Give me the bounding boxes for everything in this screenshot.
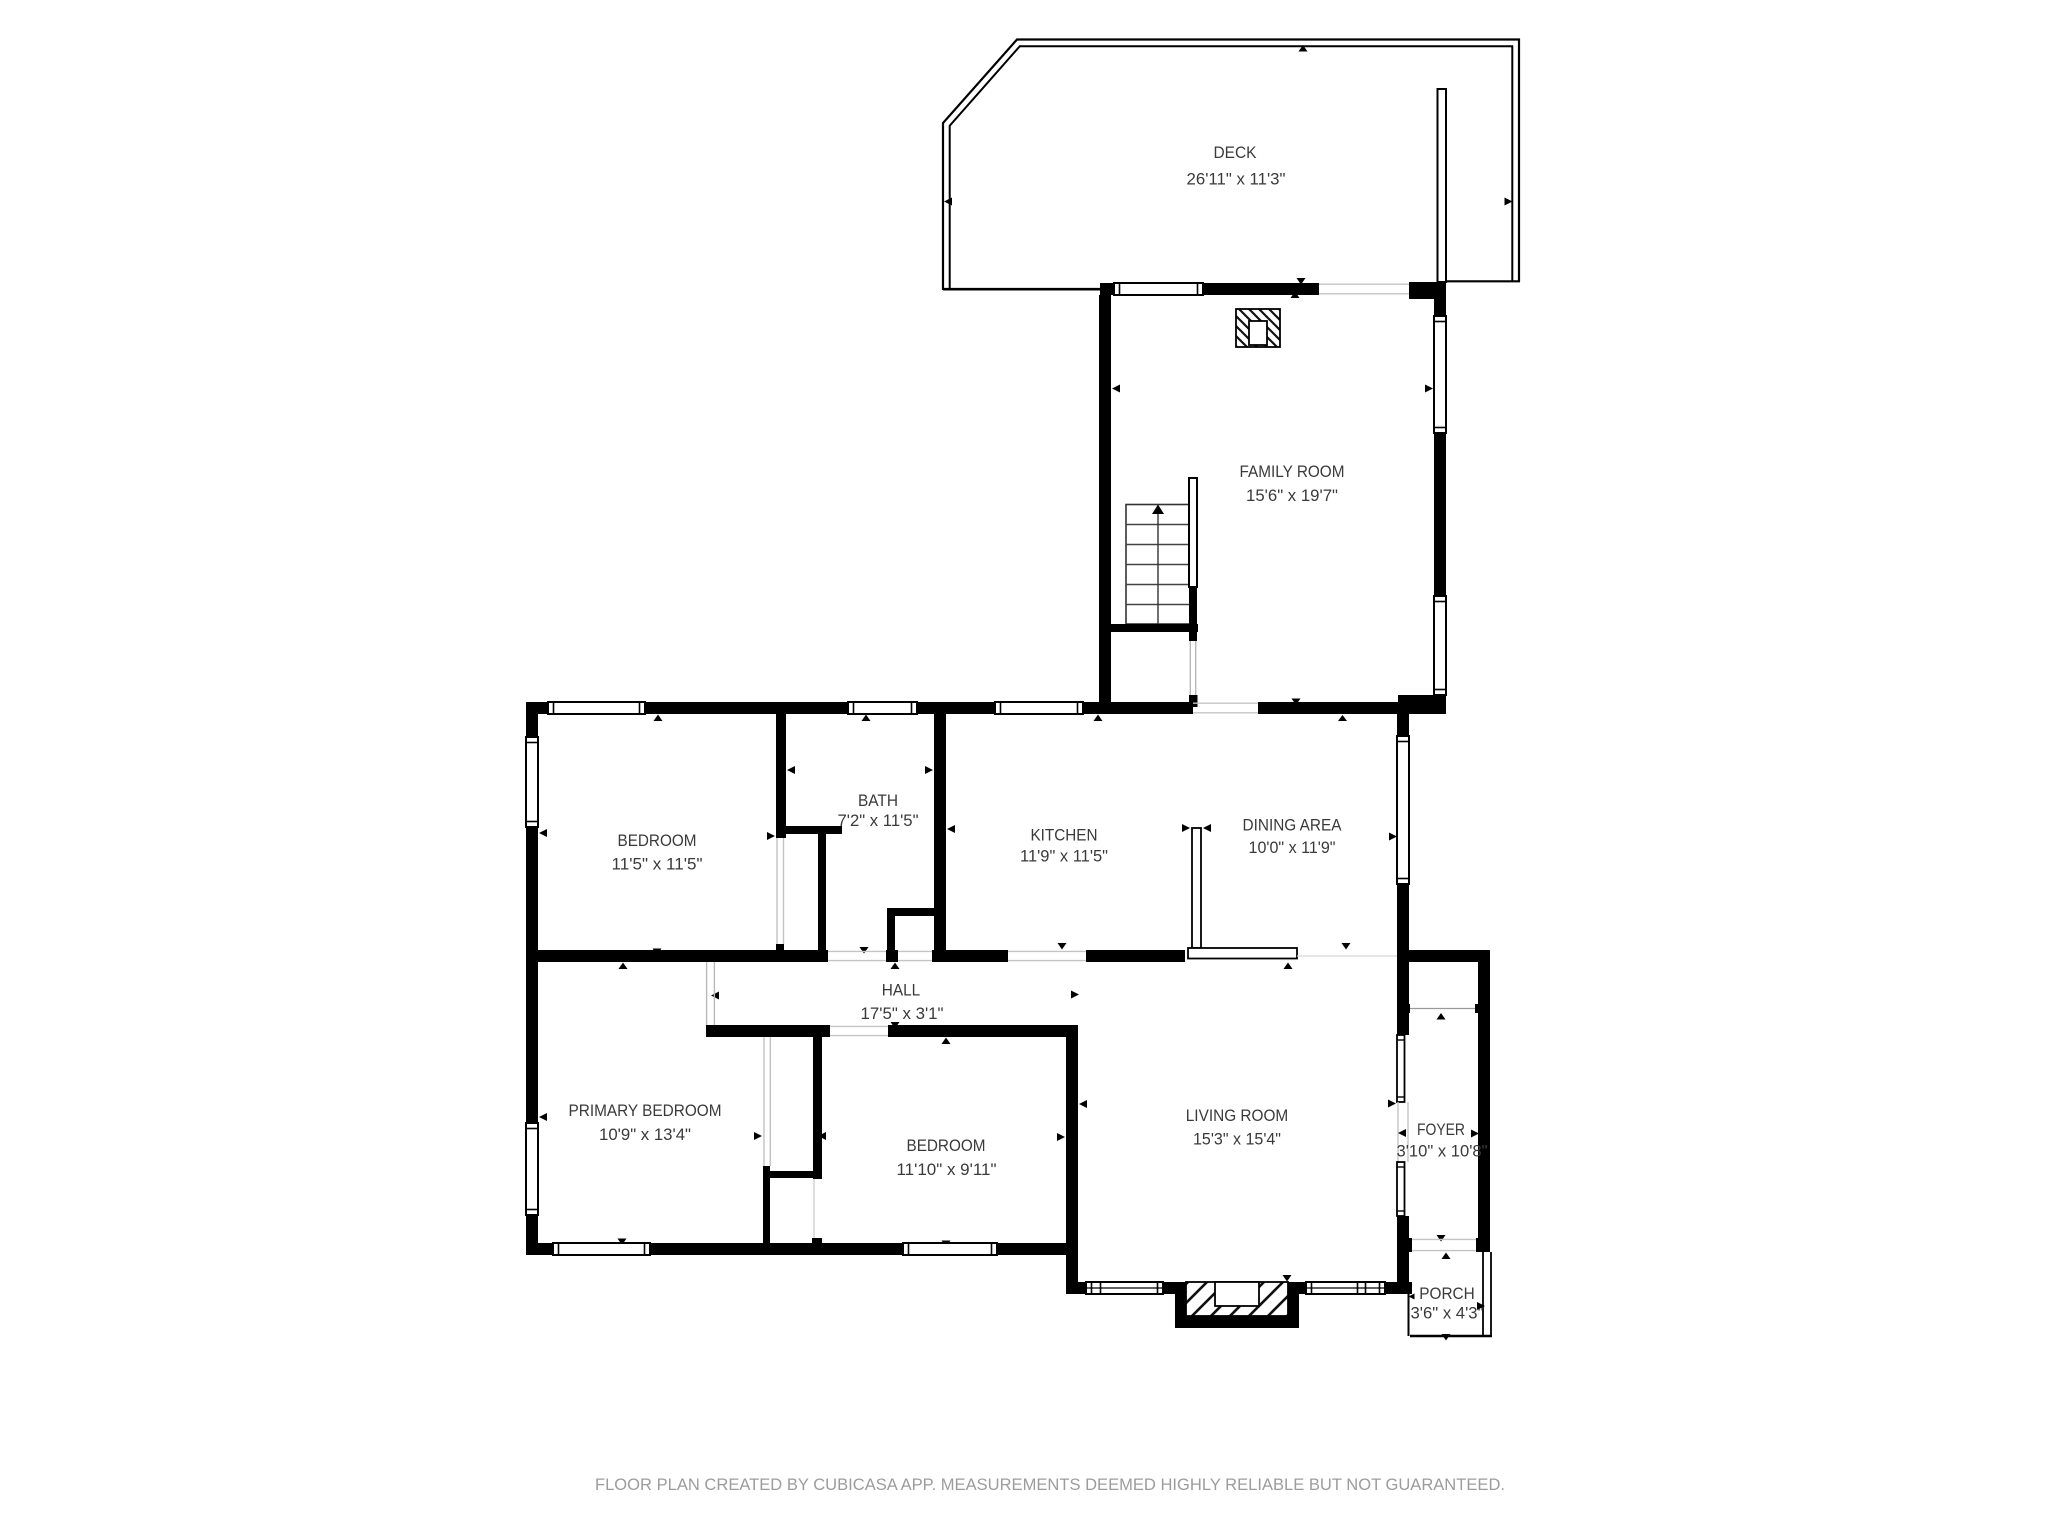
svg-text:26'11" x 11'3": 26'11" x 11'3" [1187, 170, 1286, 189]
svg-text:KITCHEN: KITCHEN [1031, 826, 1098, 845]
svg-text:3'6" x 4'3": 3'6" x 4'3" [1411, 1304, 1484, 1323]
svg-text:BEDROOM: BEDROOM [618, 831, 697, 850]
svg-text:LIVING ROOM: LIVING ROOM [1186, 1106, 1289, 1125]
svg-text:7'2" x 11'5": 7'2" x 11'5" [838, 811, 919, 830]
svg-text:15'6" x 19'7": 15'6" x 19'7" [1246, 486, 1338, 505]
svg-text:BEDROOM: BEDROOM [907, 1136, 986, 1155]
svg-text:11'9" x 11'5": 11'9" x 11'5" [1020, 847, 1108, 866]
svg-text:FOYER: FOYER [1417, 1120, 1465, 1139]
svg-text:PORCH: PORCH [1419, 1284, 1475, 1303]
svg-text:FLOOR PLAN CREATED BY CUBICASA: FLOOR PLAN CREATED BY CUBICASA APP. MEAS… [595, 1475, 1505, 1494]
svg-text:DINING AREA: DINING AREA [1243, 816, 1343, 835]
svg-text:DECK: DECK [1214, 143, 1258, 162]
svg-text:17'5" x 3'1": 17'5" x 3'1" [861, 1004, 944, 1023]
svg-text:BATH: BATH [858, 791, 898, 810]
svg-text:10'0" x 11'9": 10'0" x 11'9" [1249, 838, 1336, 857]
svg-text:10'9" x 13'4": 10'9" x 13'4" [599, 1125, 691, 1144]
svg-text:11'5" x 11'5": 11'5" x 11'5" [612, 855, 703, 874]
svg-text:11'10" x 9'11": 11'10" x 9'11" [897, 1160, 997, 1179]
svg-text:FAMILY ROOM: FAMILY ROOM [1240, 462, 1345, 481]
svg-text:3'10" x 10'8": 3'10" x 10'8" [1397, 1142, 1488, 1161]
svg-text:15'3" x 15'4": 15'3" x 15'4" [1193, 1130, 1281, 1149]
svg-text:HALL: HALL [882, 981, 921, 1000]
svg-text:PRIMARY BEDROOM: PRIMARY BEDROOM [569, 1101, 722, 1120]
